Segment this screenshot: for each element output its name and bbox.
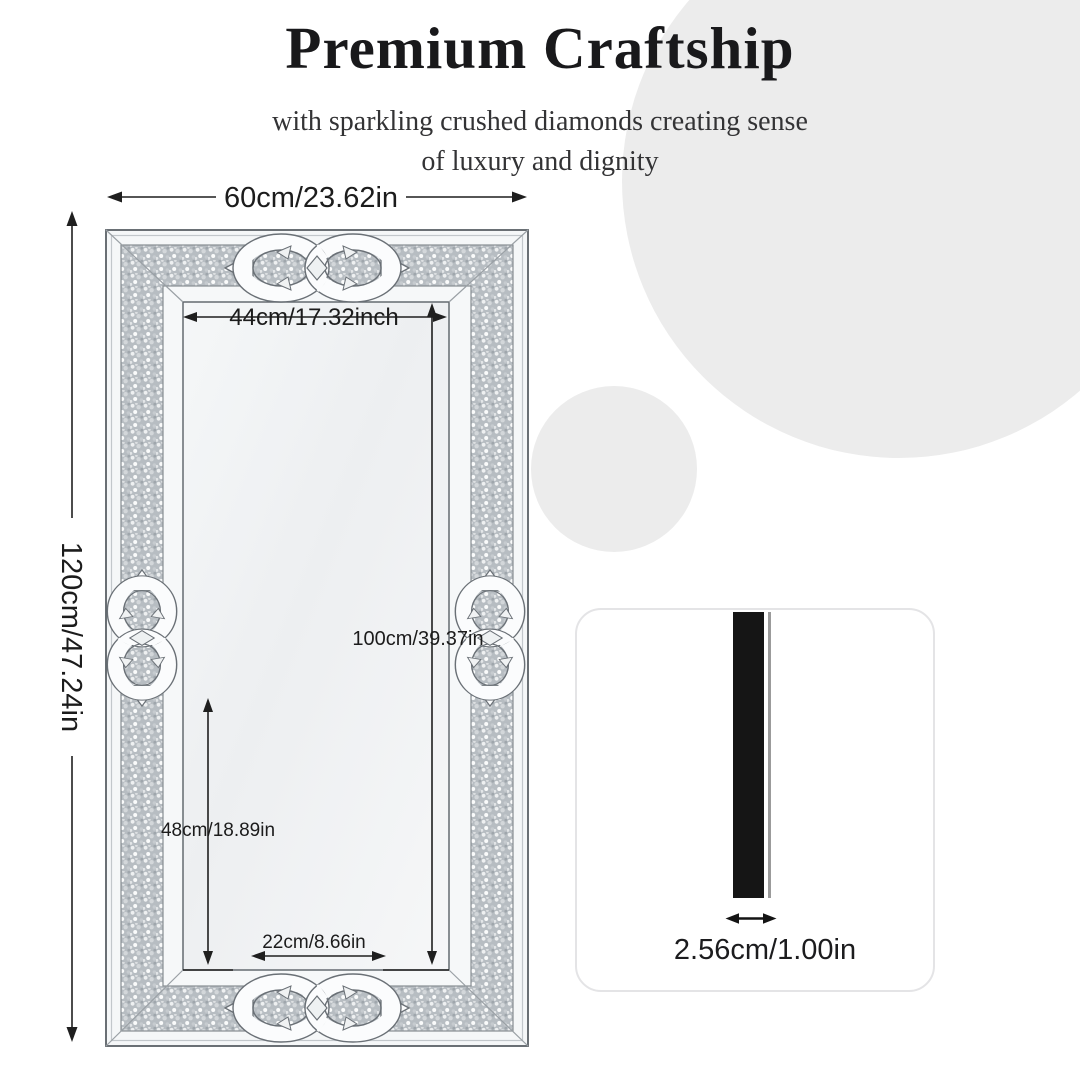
- overall-width-label: 60cm/23.62in: [224, 182, 398, 214]
- thickness-arrow-icon: [724, 910, 778, 927]
- dim-overall-height: 120cm/47.24in: [55, 211, 87, 1042]
- mirror-side-profile-bar: [733, 612, 764, 898]
- bottom-width-label: 22cm/8.66in: [262, 932, 366, 953]
- dim-overall-width: 60cm/23.62in: [107, 182, 527, 214]
- side-profile-card: 2.56cm/1.00in: [575, 608, 935, 992]
- inner-height-label: 100cm/39.37in: [352, 628, 483, 650]
- overall-height-label: 120cm/47.24in: [55, 542, 87, 732]
- thickness-label: 2.56cm/1.00in: [577, 934, 933, 967]
- lower-height-label: 48cm/18.89in: [161, 820, 275, 841]
- inner-width-label: 44cm/17.32inch: [229, 304, 398, 331]
- mirror-side-profile-edge: [768, 612, 771, 898]
